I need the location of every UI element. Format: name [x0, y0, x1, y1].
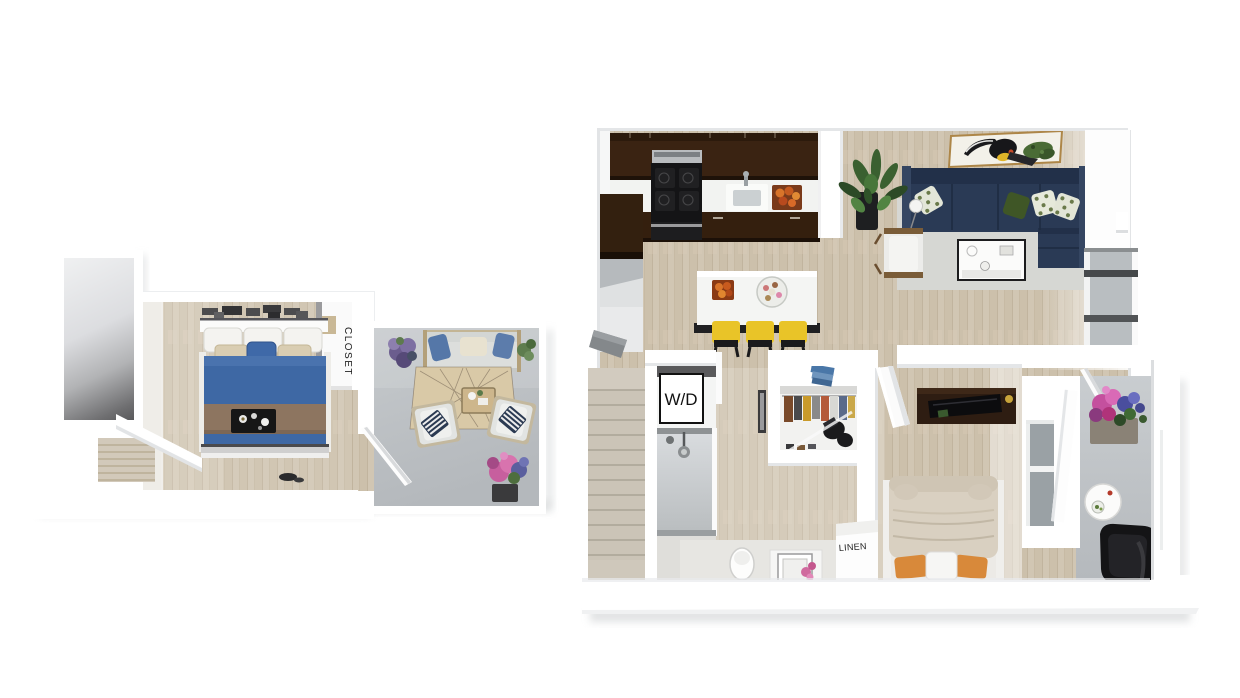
svg-text:LINEN: LINEN [838, 541, 867, 553]
svg-text:W/D: W/D [664, 390, 697, 409]
svg-text:CLOSET: CLOSET [342, 327, 353, 376]
